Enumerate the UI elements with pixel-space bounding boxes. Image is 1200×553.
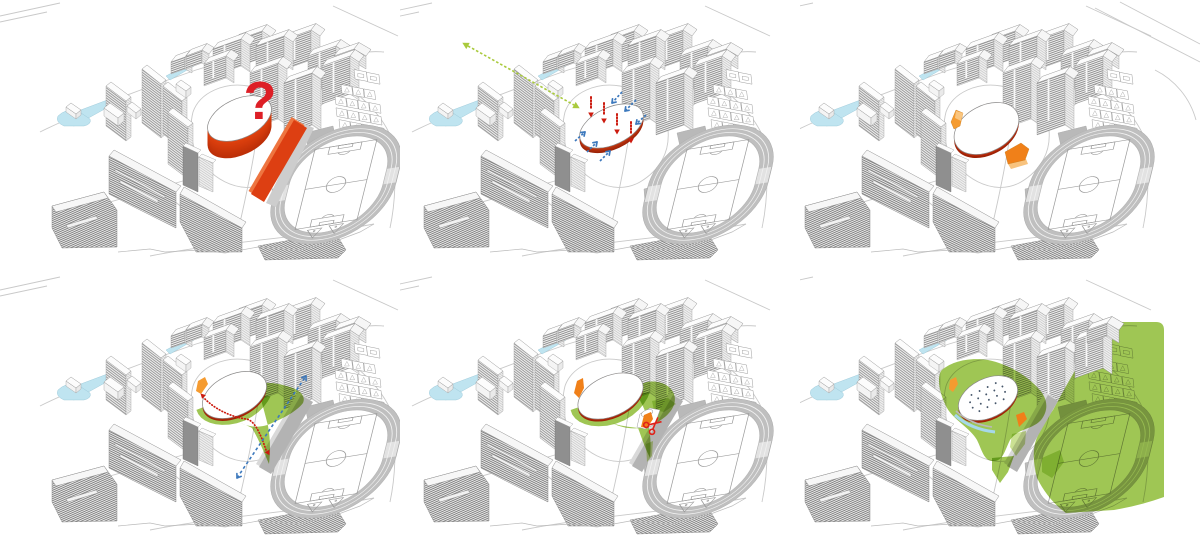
svg-text:?: ? — [244, 71, 277, 131]
